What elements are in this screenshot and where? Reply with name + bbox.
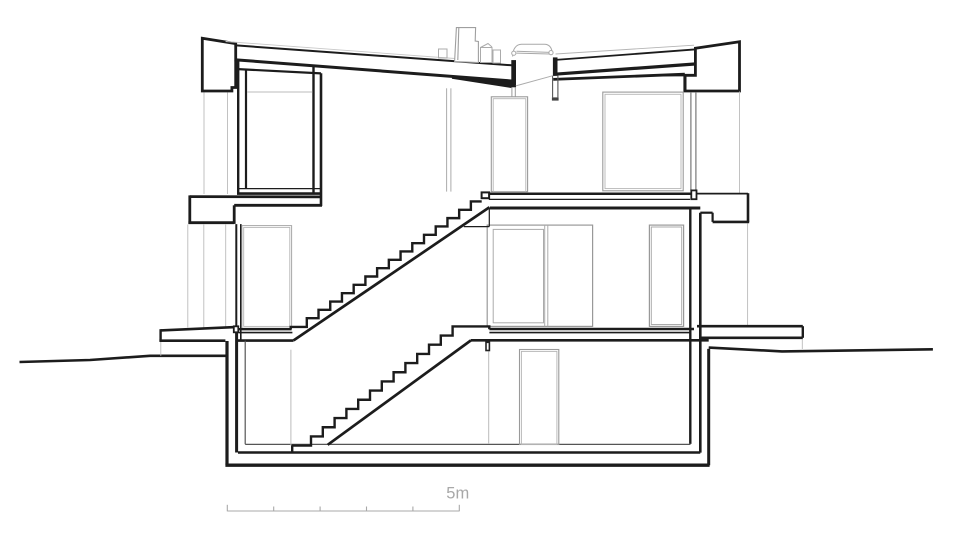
svg-text:5m: 5m xyxy=(446,484,469,502)
